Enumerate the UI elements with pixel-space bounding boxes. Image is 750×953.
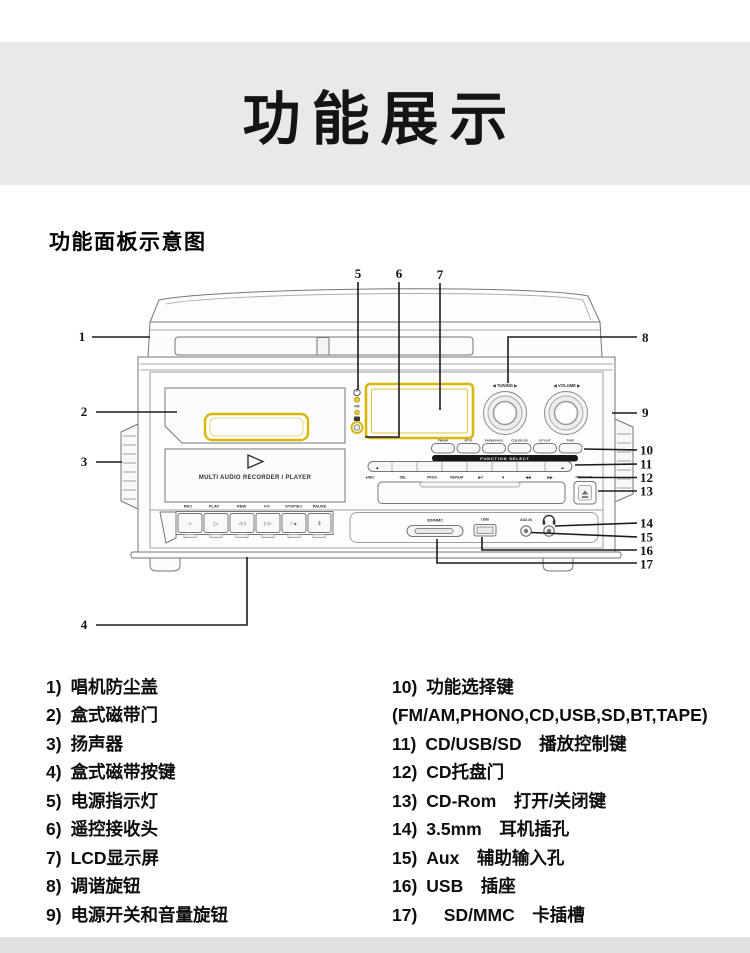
function-button bbox=[483, 444, 506, 454]
legend-item-text: 盒式磁带按键 bbox=[71, 762, 176, 782]
legend-item: 4)盒式磁带按键 bbox=[46, 758, 228, 786]
legend-item-text: 3.5mm 耳机插孔 bbox=[426, 819, 569, 839]
title-banner: 功能展示 bbox=[0, 42, 750, 185]
legend-item-text: 扬声器 bbox=[71, 734, 124, 754]
callout-13: 13 bbox=[640, 484, 654, 499]
section-heading: 功能面板示意图 bbox=[49, 226, 207, 256]
product-detail-page: 功能展示 功能面板示意图 bbox=[0, 0, 750, 953]
indicator-fm-label: FM bbox=[355, 405, 360, 409]
deck-brand-text: MULTI AUDIO RECORDER / PLAYER bbox=[199, 475, 312, 481]
callout-10: 10 bbox=[640, 443, 653, 458]
callout-9: 9 bbox=[642, 405, 649, 420]
function-button bbox=[432, 444, 455, 454]
legend-right-column: 10)功能选择键 (FM/AM,PHONO,CD,USB,SD,BT,TAPE)… bbox=[392, 673, 708, 929]
cd-control-label: DEL bbox=[400, 475, 407, 479]
dust-cover bbox=[148, 289, 602, 357]
callout-17: 17 bbox=[640, 557, 654, 572]
legend-item: 9)电源开关和音量旋钮 bbox=[46, 901, 228, 929]
legend-item-num: 8) bbox=[46, 872, 62, 900]
cd-tray-door bbox=[378, 482, 565, 504]
cd-row-left-cap: ◀ bbox=[375, 466, 379, 470]
callout-2: 2 bbox=[81, 404, 88, 419]
function-button bbox=[559, 444, 582, 454]
legend-item-num: 17) bbox=[392, 901, 417, 929]
legend-item: 12)CD托盘门 bbox=[392, 758, 708, 786]
usb-port-label: USB bbox=[481, 517, 489, 521]
legend-item-num: 2) bbox=[46, 701, 62, 729]
volume-knob-label: ◀ VOLUME ▶ bbox=[553, 383, 581, 388]
stop-eject-key-icon: □▲ bbox=[290, 521, 297, 526]
function-button bbox=[457, 444, 480, 454]
legend-item-text: 唱机防尘盖 bbox=[71, 677, 159, 697]
sd-slot-label: SD/MMC bbox=[427, 518, 443, 523]
legend-item-num: 16) bbox=[392, 872, 417, 900]
function-option-label: TAPE bbox=[567, 439, 575, 443]
legend-item: 13)CD-Rom 打开/关闭键 bbox=[392, 787, 708, 815]
function-option-label: FM/AM bbox=[438, 439, 448, 443]
legend-item-text: 功能选择键 bbox=[426, 677, 514, 697]
callout-14: 14 bbox=[640, 516, 654, 531]
aux-in-label: AUX-IN bbox=[520, 518, 532, 522]
rec-key-icon: ○ bbox=[188, 522, 192, 528]
legend-item-text: 盒式磁带门 bbox=[71, 705, 159, 725]
legend-item: 8)调谐旋钮 bbox=[46, 872, 228, 900]
legend-item-text: SD/MMC 卡插槽 bbox=[426, 905, 584, 925]
legend-item-num: 10) bbox=[392, 673, 417, 701]
legend-item: 1)唱机防尘盖 bbox=[46, 673, 228, 701]
legend-item: 3)扬声器 bbox=[46, 730, 228, 758]
cd-control-label: ●REC bbox=[365, 475, 375, 479]
cassette-key-label: REC bbox=[184, 504, 193, 509]
rew-key-icon: ◁◁ bbox=[238, 521, 246, 527]
right-foot bbox=[543, 558, 573, 571]
legend-item-text: USB 插座 bbox=[426, 876, 515, 896]
cd-control-label: ■ bbox=[502, 475, 504, 479]
cassette-door bbox=[165, 388, 345, 443]
legend-item: 15)Aux 辅助输入孔 bbox=[392, 844, 708, 872]
ports-panel: SD/MMC USB AUX-IN bbox=[350, 513, 598, 543]
legend-item-num: 5) bbox=[46, 787, 62, 815]
legend-item-text: (FM/AM,PHONO,CD,USB,SD,BT,TAPE) bbox=[392, 705, 708, 725]
legend-item-num: 6) bbox=[46, 815, 62, 843]
legend-item-text: CD托盘门 bbox=[426, 762, 504, 782]
function-select-bar-label: FUNCTION SELECT bbox=[480, 456, 530, 461]
left-foot bbox=[150, 558, 180, 571]
function-option-label: CD/USB SD bbox=[511, 439, 528, 443]
function-button bbox=[508, 444, 531, 454]
legend-item-num: 14) bbox=[392, 815, 417, 843]
callout-8: 8 bbox=[642, 330, 649, 345]
legend-item: 2)盒式磁带门 bbox=[46, 701, 228, 729]
cassette-key-label: STOP/EJ bbox=[285, 504, 302, 509]
cd-control-label: ▶▶ bbox=[546, 475, 553, 479]
lcd-display bbox=[366, 384, 473, 438]
legend-item-num: 7) bbox=[46, 844, 62, 872]
cassette-key-label: PAUSE bbox=[313, 504, 327, 509]
bottom-gray-bar bbox=[0, 937, 750, 953]
page-title: 功能展示 bbox=[231, 72, 518, 156]
callout-5: 5 bbox=[355, 266, 362, 281]
indicator-mark-icon bbox=[354, 417, 360, 422]
callout-6: 6 bbox=[396, 266, 403, 281]
legend-item-text: Aux 辅助输入孔 bbox=[426, 848, 564, 868]
legend-item: 10)功能选择键 bbox=[392, 673, 708, 701]
legend-item: 14)3.5mm 耳机插孔 bbox=[392, 815, 708, 843]
legend-item: (FM/AM,PHONO,CD,USB,SD,BT,TAPE) bbox=[392, 701, 708, 729]
function-option-label: BT OUT bbox=[539, 439, 550, 443]
cd-row-right-cap: ▶ bbox=[561, 466, 565, 470]
ff-key-icon: ▷▷ bbox=[264, 521, 272, 527]
callout-1: 1 bbox=[79, 329, 86, 344]
legend-item-text: LCD显示屏 bbox=[71, 848, 159, 868]
cassette-key-label: F.F bbox=[264, 504, 270, 509]
callout-4: 4 bbox=[81, 617, 88, 632]
cd-control-label: ▶‖ bbox=[477, 475, 483, 479]
legend-item-text: CD/USB/SD 播放控制键 bbox=[425, 734, 626, 754]
play-key-icon: ▷ bbox=[214, 522, 219, 528]
function-button bbox=[534, 444, 557, 454]
legend-item: 17) SD/MMC 卡插槽 bbox=[392, 901, 708, 929]
cassette-key-label: PLAY bbox=[209, 504, 220, 509]
function-option-label: BT IR bbox=[465, 439, 474, 443]
legend-item-num: 9) bbox=[46, 901, 62, 929]
legend-item-text: 遥控接收头 bbox=[71, 819, 159, 839]
legend-item-text: CD-Rom 打开/关闭键 bbox=[426, 791, 606, 811]
function-option-label: PHONO/AUX bbox=[485, 439, 503, 443]
function-panel-diagram: MULTI AUDIO RECORDER / PLAYER FM ◀ TUNIN… bbox=[0, 260, 750, 680]
legend-item-num: 13) bbox=[392, 787, 417, 815]
legend-item-text: 电源指示灯 bbox=[71, 791, 159, 811]
pause-key-icon: ‖ bbox=[318, 522, 320, 528]
legend-item-num: 1) bbox=[46, 673, 62, 701]
left-speaker bbox=[121, 424, 138, 509]
cassette-deck-front: MULTI AUDIO RECORDER / PLAYER bbox=[165, 449, 345, 502]
tuning-knob-label: ◀ TUNING ▶ bbox=[492, 383, 519, 388]
callout-3: 3 bbox=[81, 454, 88, 469]
legend-item: 16)USB 插座 bbox=[392, 872, 708, 900]
legend-item-num: 15) bbox=[392, 844, 417, 872]
cd-control-label: PROG bbox=[427, 475, 437, 479]
cd-control-label: ◀◀ bbox=[524, 475, 531, 479]
legend-left-column: 1)唱机防尘盖 2)盒式磁带门 3)扬声器 4)盒式磁带按键 5)电源指示灯 6… bbox=[46, 673, 228, 929]
cassette-key-label: REW bbox=[237, 504, 247, 509]
legend-item-text: 调谐旋钮 bbox=[71, 876, 141, 896]
legend-item-num: 12) bbox=[392, 758, 417, 786]
legend-item: 7)LCD显示屏 bbox=[46, 844, 228, 872]
legend-item-text: 电源开关和音量旋钮 bbox=[71, 905, 229, 925]
right-speaker bbox=[615, 419, 633, 502]
legend-item-num: 11) bbox=[392, 730, 416, 758]
legend-item: 11)CD/USB/SD 播放控制键 bbox=[392, 730, 708, 758]
legend-item: 6)遥控接收头 bbox=[46, 815, 228, 843]
callout-7: 7 bbox=[437, 267, 444, 282]
status-led bbox=[355, 410, 360, 415]
cd-control-label: REPEAT bbox=[450, 475, 464, 479]
legend-item-num: 3) bbox=[46, 730, 62, 758]
legend-item-num: 4) bbox=[46, 758, 62, 786]
legend-item: 5)电源指示灯 bbox=[46, 787, 228, 815]
power-led bbox=[354, 397, 359, 402]
